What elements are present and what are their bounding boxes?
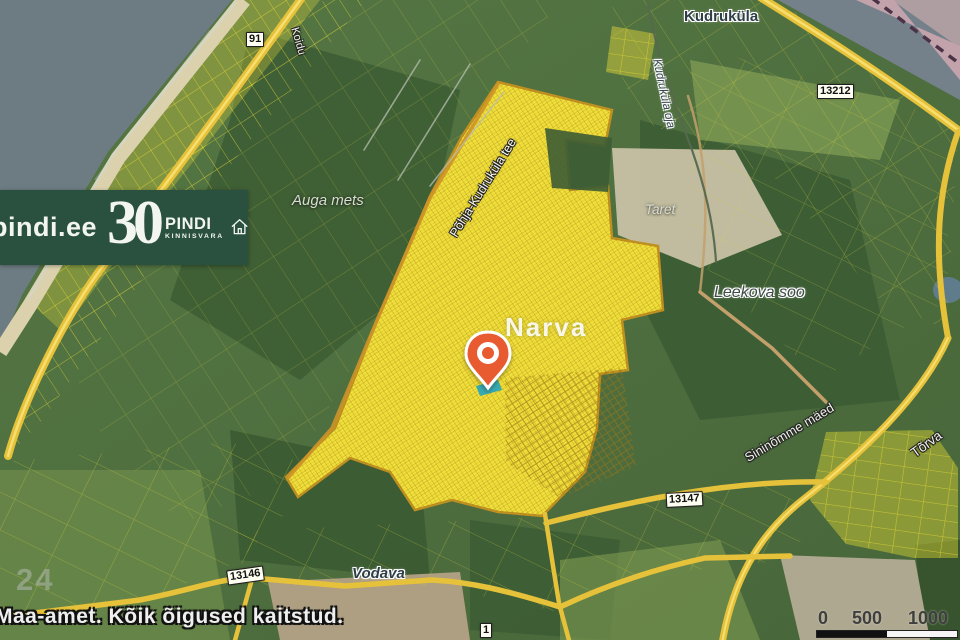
house-icon <box>231 214 248 240</box>
watermark-site: pindi.ee <box>0 212 97 243</box>
scale-bar: 0 500 1000 <box>800 608 958 638</box>
scale-tick-1000: 1000 <box>908 608 948 629</box>
watermark-anniversary-number: 30 <box>107 197 159 250</box>
watermark-brand-subtitle: KINNISVARA <box>165 234 224 241</box>
road-badge-13212: 13212 <box>817 84 854 99</box>
road-badge-1: 1 <box>480 623 492 638</box>
watermark-banner: pindi.ee 30 PINDI KINNISVARA <box>0 190 248 265</box>
scale-tick-0: 0 <box>818 608 828 629</box>
road-badge-91: 91 <box>246 32 264 47</box>
scale-bar-segments <box>816 630 958 638</box>
map-canvas[interactable]: Kudruküla Kudruküla oja Põhja-Kudruküla … <box>0 0 960 640</box>
satellite-map-art <box>0 0 960 640</box>
watermark-brand: PINDI <box>165 216 224 233</box>
road-badge-13147: 13147 <box>666 491 703 508</box>
scale-tick-500: 500 <box>852 608 882 629</box>
location-pin-icon[interactable] <box>462 330 514 392</box>
